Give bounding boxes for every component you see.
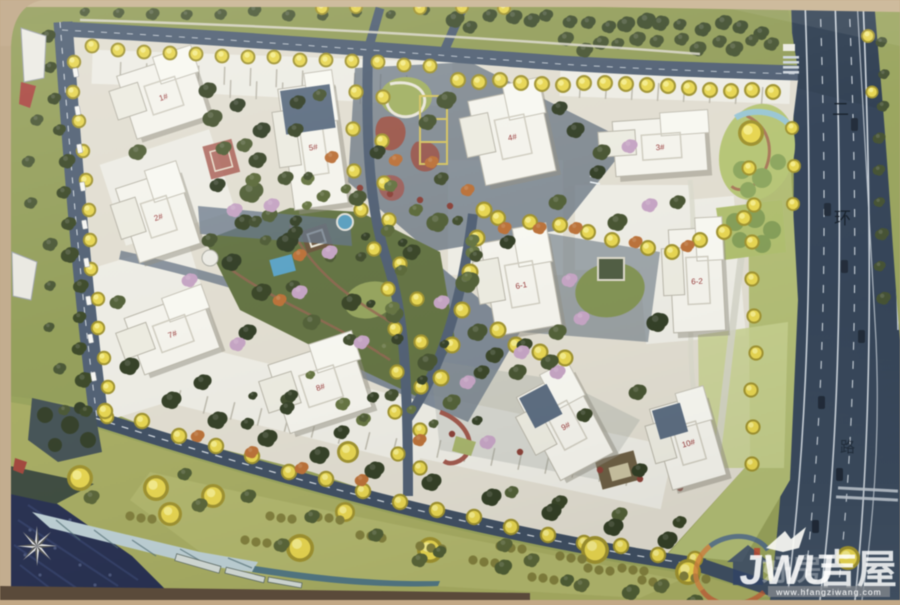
svg-text:www.hfangziwang.com: www.hfangziwang.com (775, 587, 881, 597)
svg-text:吉屋: 吉屋 (817, 548, 897, 592)
svg-text:好房: 好房 (761, 554, 822, 587)
